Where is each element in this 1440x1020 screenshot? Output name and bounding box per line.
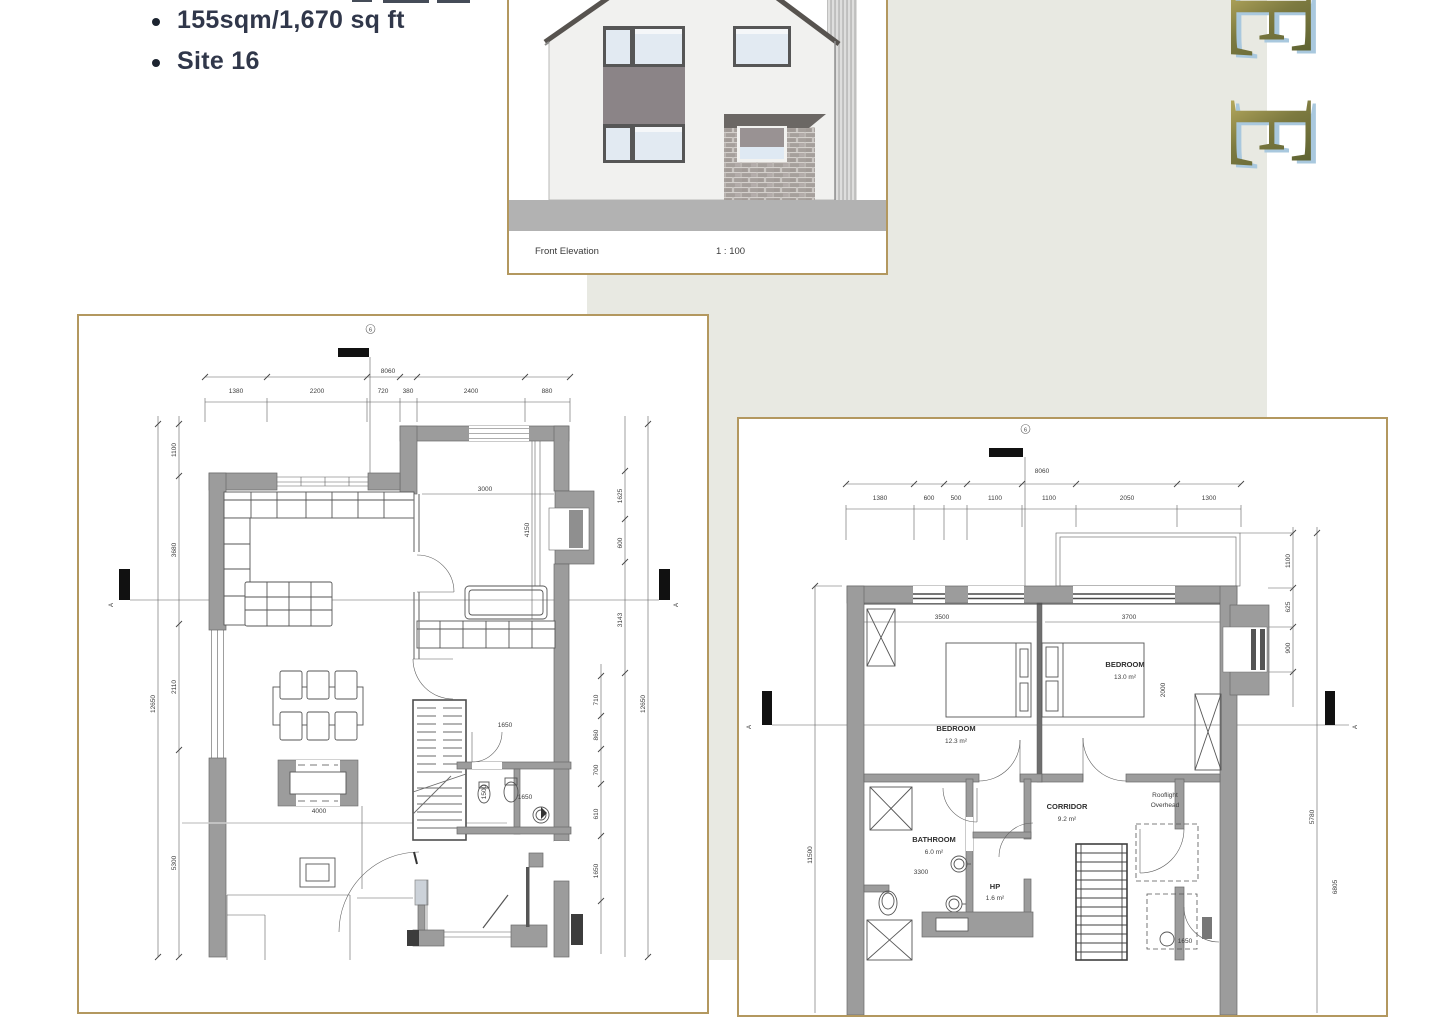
svg-text:1650: 1650 xyxy=(518,794,533,801)
svg-text:3500: 3500 xyxy=(935,614,950,621)
svg-text:2200: 2200 xyxy=(310,388,325,395)
svg-text:700: 700 xyxy=(593,764,600,775)
svg-text:600: 600 xyxy=(924,495,935,502)
svg-text:1100: 1100 xyxy=(1285,554,1292,568)
svg-text:500: 500 xyxy=(951,495,962,502)
svg-text:880: 880 xyxy=(542,388,553,395)
svg-text:12.3 m²: 12.3 m² xyxy=(945,738,968,745)
svg-text:E: E xyxy=(1215,97,1339,172)
svg-text:1 : 100: 1 : 100 xyxy=(716,246,745,257)
svg-text:Front Elevation: Front Elevation xyxy=(535,246,599,257)
svg-text:Overhead: Overhead xyxy=(1151,802,1180,809)
svg-text:6805: 6805 xyxy=(1332,879,1339,894)
svg-text:1100: 1100 xyxy=(171,443,178,457)
svg-text:3700: 3700 xyxy=(1122,614,1137,621)
svg-text:1380: 1380 xyxy=(873,495,888,502)
svg-text:4000: 4000 xyxy=(312,808,327,815)
svg-text:5780: 5780 xyxy=(1309,809,1316,824)
svg-text:A: A xyxy=(1353,725,1359,729)
svg-text:A: A xyxy=(109,603,115,607)
svg-text:3680: 3680 xyxy=(171,542,178,557)
svg-text:5300: 5300 xyxy=(171,855,178,870)
svg-text:1500: 1500 xyxy=(481,784,488,799)
svg-text:E: E xyxy=(1215,0,1339,62)
svg-text:2000: 2000 xyxy=(1160,682,1167,697)
svg-text:11500: 11500 xyxy=(807,846,814,864)
svg-text:BATHROOM: BATHROOM xyxy=(912,835,956,844)
svg-text:1650: 1650 xyxy=(593,863,600,878)
svg-text:3143: 3143 xyxy=(617,612,624,627)
svg-text:2050: 2050 xyxy=(1120,495,1135,502)
svg-text:2110: 2110 xyxy=(171,680,178,694)
svg-text:CORRIDOR: CORRIDOR xyxy=(1047,802,1088,811)
svg-text:900: 900 xyxy=(1285,642,1292,653)
svg-text:BEDROOM: BEDROOM xyxy=(1105,660,1144,669)
svg-text:1380: 1380 xyxy=(229,388,244,395)
svg-text:8060: 8060 xyxy=(381,368,396,375)
svg-text:Rooflight: Rooflight xyxy=(1152,792,1178,799)
svg-text:1650: 1650 xyxy=(1178,938,1193,945)
svg-text:6: 6 xyxy=(369,327,372,333)
svg-text:6.0 m²: 6.0 m² xyxy=(925,849,944,856)
svg-text:1650: 1650 xyxy=(498,722,513,729)
svg-text:8060: 8060 xyxy=(1035,468,1050,475)
svg-text:4150: 4150 xyxy=(524,522,531,537)
svg-text:3000: 3000 xyxy=(478,486,493,493)
svg-text:1.6 m²: 1.6 m² xyxy=(986,895,1005,902)
svg-text:BEDROOM: BEDROOM xyxy=(936,724,975,733)
svg-text:9.2 m²: 9.2 m² xyxy=(1058,816,1077,823)
svg-text:A: A xyxy=(674,603,680,607)
svg-text:6: 6 xyxy=(1024,427,1027,433)
svg-text:HP: HP xyxy=(990,882,1000,891)
svg-text:710: 710 xyxy=(593,694,600,705)
svg-text:1625: 1625 xyxy=(617,488,624,503)
svg-text:1100: 1100 xyxy=(1042,495,1056,502)
svg-text:2400: 2400 xyxy=(464,388,479,395)
svg-text:12650: 12650 xyxy=(150,695,157,713)
svg-text:A: A xyxy=(747,725,753,729)
svg-text:3300: 3300 xyxy=(914,869,929,876)
svg-text:610: 610 xyxy=(593,808,600,819)
svg-text:12650: 12650 xyxy=(640,695,647,713)
svg-text:13.0 m²: 13.0 m² xyxy=(1114,674,1137,681)
svg-text:1100: 1100 xyxy=(988,495,1002,502)
svg-text:380: 380 xyxy=(403,388,414,395)
svg-text:1300: 1300 xyxy=(1202,495,1217,502)
svg-text:860: 860 xyxy=(593,729,600,740)
svg-text:625: 625 xyxy=(1285,601,1292,612)
svg-text:600: 600 xyxy=(617,537,624,548)
svg-text:720: 720 xyxy=(378,388,389,395)
